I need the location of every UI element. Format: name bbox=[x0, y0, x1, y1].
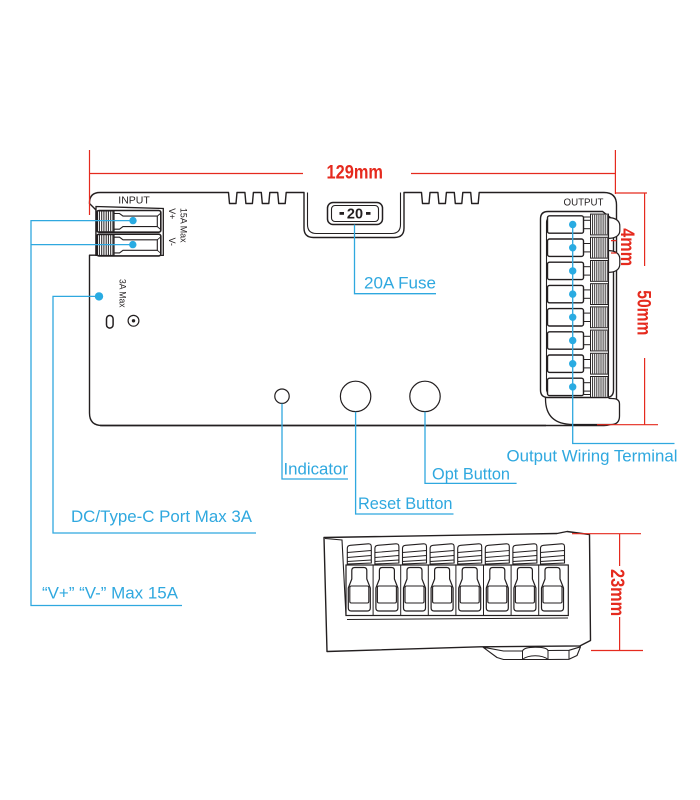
svg-text:Output Wiring Terminal: Output Wiring Terminal bbox=[507, 447, 678, 466]
svg-text:23mm: 23mm bbox=[606, 569, 627, 616]
svg-text:V-: V- bbox=[167, 238, 177, 246]
svg-text:“V+” “V-” Max 15A: “V+” “V-” Max 15A bbox=[42, 584, 179, 603]
svg-text:20A Fuse: 20A Fuse bbox=[364, 273, 436, 292]
svg-text:DC/Type-C Port Max 3A: DC/Type-C Port Max 3A bbox=[71, 507, 253, 526]
svg-text:50mm: 50mm bbox=[633, 290, 654, 335]
svg-text:4mm: 4mm bbox=[616, 228, 637, 266]
svg-text:V+: V+ bbox=[167, 208, 177, 219]
svg-text:20: 20 bbox=[347, 207, 363, 223]
svg-text:Reset Button: Reset Button bbox=[358, 494, 453, 513]
svg-text:3A Max: 3A Max bbox=[117, 279, 127, 308]
svg-text:OUTPUT: OUTPUT bbox=[564, 197, 604, 208]
svg-text:129mm: 129mm bbox=[327, 162, 384, 184]
svg-text:15A Max: 15A Max bbox=[178, 208, 188, 243]
svg-text:Opt Button: Opt Button bbox=[432, 465, 510, 484]
svg-text:Indicator: Indicator bbox=[284, 460, 349, 479]
svg-text:INPUT: INPUT bbox=[118, 195, 150, 206]
